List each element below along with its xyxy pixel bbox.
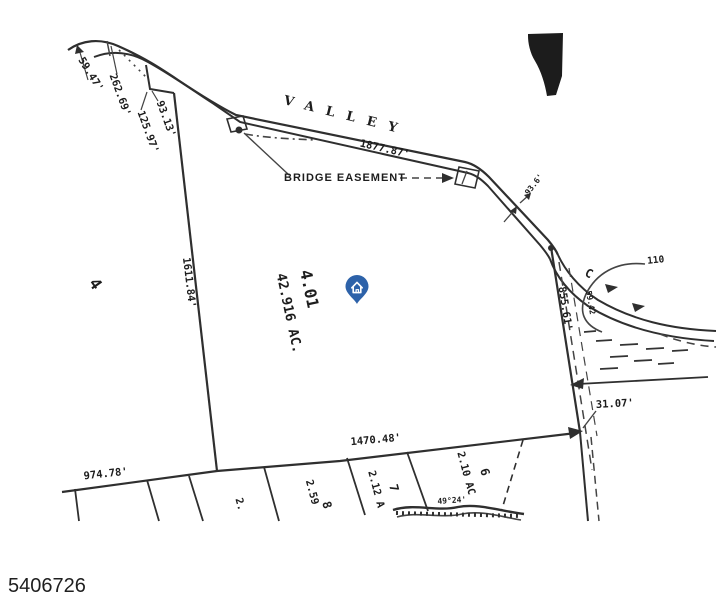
leader-262 (111, 46, 117, 74)
station-small-label: 93.6' (523, 172, 545, 197)
bearing-small-label: 49°24' (437, 495, 466, 506)
ref-110-label: 110 (647, 254, 665, 267)
lot-line-c (189, 476, 203, 521)
bottom-stream (393, 506, 524, 520)
east-reference-line (570, 377, 708, 389)
lot-line-e (347, 458, 365, 515)
dim-west-label: 1611.84' (180, 257, 198, 309)
lot6-number-label: 6 (477, 467, 492, 478)
leader-125 (141, 92, 147, 110)
plat-survey-photo: VALLEY 1877.87' BRIDGE EASEMENT 59.47' 2… (0, 0, 720, 600)
lot-line-b (147, 480, 159, 521)
lot7-number-label: 7 (386, 483, 401, 494)
lot-line-g-dashed (502, 440, 523, 509)
road-inner-edge (94, 53, 550, 259)
dim-nw4-label: 125.97' (135, 109, 161, 155)
dim-nw1-label: 59.47' (75, 55, 105, 94)
road-outer-edge (68, 41, 558, 255)
lot-line-d (264, 467, 279, 521)
curve-small-label: 59.42 (584, 290, 597, 315)
lot-line-f (407, 452, 428, 511)
curve-chevron-2 (632, 303, 645, 312)
dim-east-jog-label: 31.07' (596, 397, 635, 411)
map-pin (346, 275, 369, 304)
lot6-area-label: 2.10 AC (454, 450, 477, 496)
lot7-area-label: 2.12 A (365, 469, 387, 509)
curve-letter-label: C (582, 266, 595, 282)
easement-box-east (455, 167, 479, 188)
lot-line-a (75, 489, 79, 521)
road-curve-outer (558, 255, 716, 331)
se-boundary-continuation (580, 432, 588, 521)
photo-id-label: 5406726 (8, 575, 86, 597)
curve-chevron-1 (605, 284, 618, 293)
reference-line (578, 377, 708, 384)
lot8-area-label: 2.59 (303, 478, 321, 506)
road-valley (68, 41, 716, 347)
leader-93 (152, 91, 158, 101)
bridge-easement-label: BRIDGE EASEMENT (284, 172, 406, 184)
dim-nw2-label: 262.69' (107, 72, 133, 118)
adjacent-lot4-label: 4 (85, 274, 106, 293)
dashed-row-3 (591, 437, 599, 521)
plat-map: VALLEY 1877.87' BRIDGE EASEMENT 59.47' 2… (0, 0, 720, 600)
easement-leader-west (244, 133, 289, 175)
road-frontage-label: 1877.87' (359, 138, 411, 161)
dim-southwest-label: 974.78' (83, 466, 128, 483)
ne-corner-dot (548, 245, 554, 251)
road-name-label: VALLEY (281, 93, 410, 139)
parcel-lot-number: 4.01 (296, 268, 323, 310)
south-boundary (62, 433, 576, 492)
easement-leader-arrowhead (442, 173, 454, 183)
stream-bank-upper (393, 506, 524, 514)
lot9-area-label: 2. (232, 497, 247, 512)
scan-fold-mark (528, 33, 563, 96)
dim-south-label: 1470.48' (350, 432, 401, 448)
easement-dot (236, 127, 243, 134)
east-boundary (551, 247, 580, 432)
